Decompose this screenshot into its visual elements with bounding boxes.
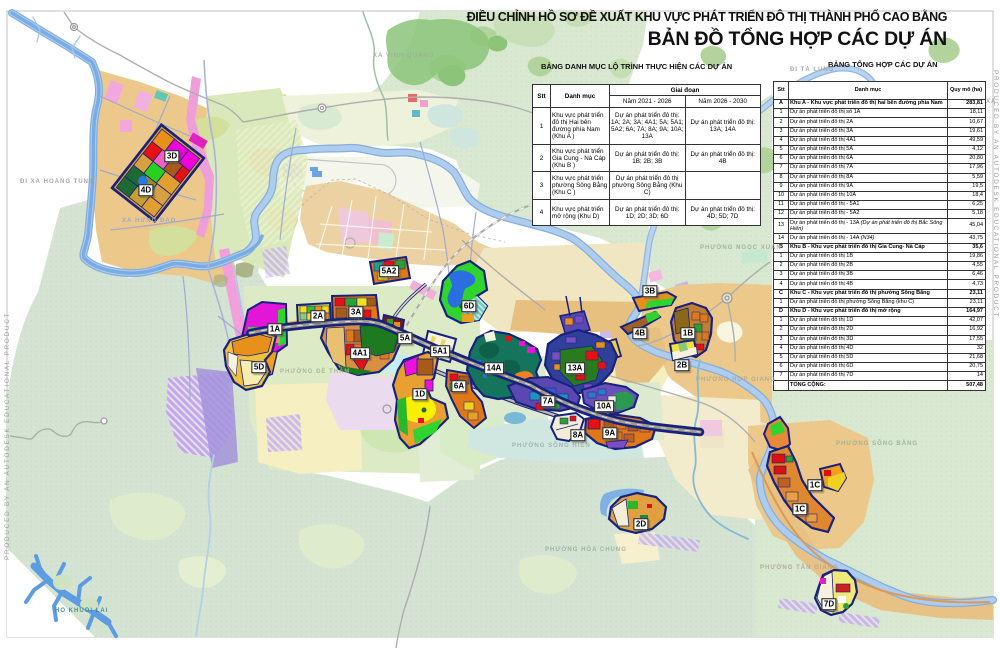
svg-text:PRODUCED BY AN AUTODESK EDUCAT: PRODUCED BY AN AUTODESK EDUCATIONAL PROD…	[4, 312, 11, 560]
svg-text:PRODUCED BY AN AUTODESK EDUCAT: PRODUCED BY AN AUTODESK EDUCATIONAL PROD…	[992, 70, 999, 318]
